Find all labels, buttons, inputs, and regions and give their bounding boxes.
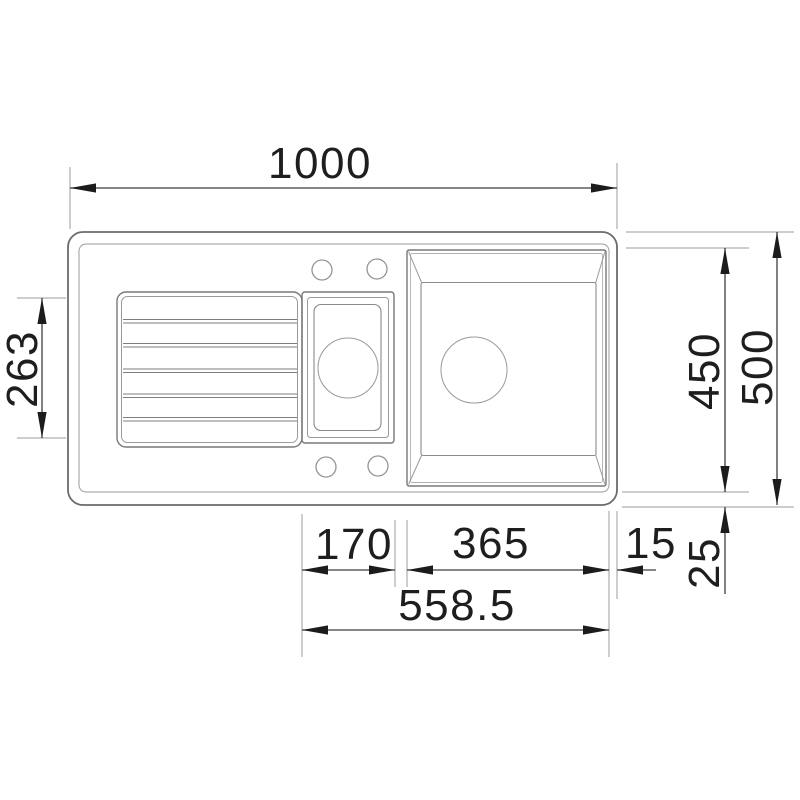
- faucet-hole-top-left: [312, 260, 332, 280]
- arrow-365-right: [583, 565, 609, 574]
- arrow-25-up: [720, 507, 729, 533]
- arrow-500-bottom: [772, 479, 781, 505]
- arrow-263-top: [37, 298, 46, 324]
- large-bowl-bevel-br: [596, 455, 606, 485]
- arrow-width-left: [70, 183, 96, 192]
- faucet-hole-top-right: [367, 259, 387, 279]
- label-rim-width: 25: [680, 537, 729, 589]
- faucet-hole-bottom-right: [368, 456, 388, 476]
- label-right-edge: 15: [625, 519, 677, 568]
- small-bowl-outer: [302, 292, 394, 443]
- drainboard-ridges: [123, 320, 297, 422]
- label-small-bowl-width: 170: [315, 520, 393, 569]
- arrow-500-top: [772, 232, 781, 258]
- arrow-450-top: [720, 248, 729, 274]
- arrow-450-bottom: [720, 466, 729, 492]
- label-large-bowl-width: 365: [452, 519, 530, 568]
- small-bowl-drain: [318, 338, 378, 398]
- label-overall-width: 1000: [268, 139, 372, 188]
- small-bowl: [302, 292, 394, 443]
- large-bowl: [407, 250, 606, 486]
- large-bowl-bevel-tr: [596, 252, 606, 284]
- faucet-hole-bottom-left: [316, 457, 336, 477]
- label-overall-depth: 500: [733, 328, 782, 406]
- sink-technical-drawing: 1000 263 450 500 170 365 15 25 558.5: [0, 0, 800, 800]
- small-bowl-floor: [314, 305, 381, 431]
- arrow-558-right: [583, 625, 609, 634]
- large-bowl-drain: [441, 337, 507, 403]
- sink-rim-inner-edge: [79, 244, 609, 492]
- label-bowls-span: 558.5: [398, 581, 516, 630]
- drainboard: [117, 292, 302, 447]
- small-bowl-wall: [308, 298, 389, 438]
- drawing-svg: 1000 263 450 500 170 365 15 25 558.5: [0, 0, 800, 800]
- arrow-263-bottom: [37, 412, 46, 438]
- arrow-558-left: [302, 625, 328, 634]
- label-drainboard-depth: 263: [0, 330, 47, 408]
- label-basin-depth: 450: [680, 332, 729, 410]
- arrow-365-left: [407, 565, 433, 574]
- large-bowl-floor: [421, 283, 596, 456]
- arrow-width-right: [591, 183, 617, 192]
